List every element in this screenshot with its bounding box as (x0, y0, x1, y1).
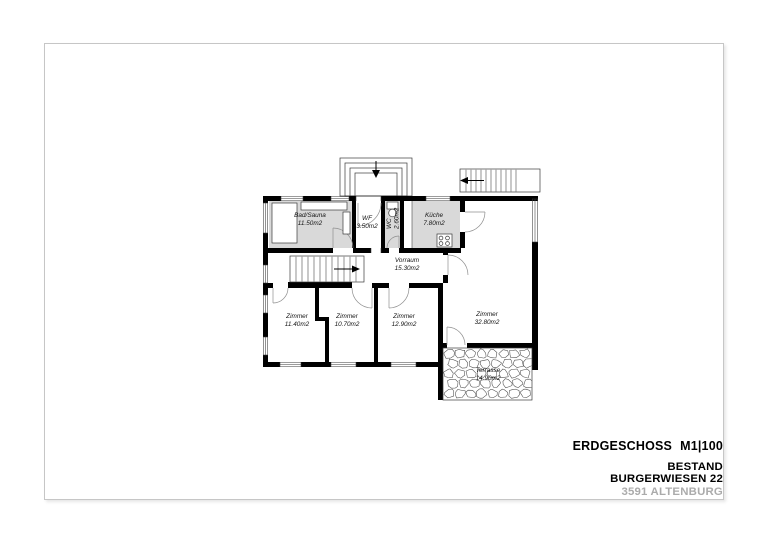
room-area-wc: 2.60m2 (394, 207, 401, 230)
room-label-wc: WC (386, 218, 393, 229)
room-label-vorraum: Vorraum (395, 257, 420, 264)
room-label-wf: WF (362, 215, 373, 222)
title-line-floor: ERDGESCHOSSM1|100 (573, 439, 723, 453)
terrace-door (447, 327, 465, 345)
room-label-zimmer1: Zimmer (285, 313, 309, 320)
zimmer1-door (273, 288, 288, 303)
kueche-door (465, 212, 485, 232)
bathtub (301, 202, 347, 210)
entrance-porch-steps (340, 158, 412, 196)
exterior-staircase (460, 169, 540, 192)
room-area-kueche: 7.80m2 (423, 220, 445, 227)
exterior-stair-direction-arrow-icon (460, 177, 484, 184)
zimmer2-door (352, 288, 372, 308)
title-block: ERDGESCHOSSM1|100 BESTAND BURGERWIESEN 2… (573, 439, 723, 498)
room-area-bad-sauna: 11.50m2 (298, 220, 323, 227)
sauna-bench (272, 203, 297, 243)
room-area-vorraum: 15.30m2 (395, 265, 420, 272)
room-label-zimmer2: Zimmer (335, 313, 359, 320)
room-area-zimmer3: 12.90m2 (392, 321, 417, 328)
entrance-direction-arrow-icon (372, 161, 380, 178)
floor-label: ERDGESCHOSS (573, 439, 672, 453)
page: { "title_block": { "floor_label": "ERDGE… (0, 0, 768, 543)
city-label: 3591 ALTENBURG (573, 486, 723, 498)
scale-label: M1|100 (680, 439, 723, 453)
room-area-terrasse: 14.90m2 (476, 375, 501, 382)
room-area-zimmer1: 11.40m2 (285, 321, 310, 328)
wf-passage (371, 248, 381, 253)
terrace (443, 348, 534, 400)
room-area-zimmer4: 32.80m2 (475, 319, 500, 326)
shower (343, 212, 350, 234)
room-area-wf: 3.50m2 (356, 223, 378, 230)
interior-staircase (290, 256, 364, 282)
room-label-bad-sauna: Bad/Sauna (294, 212, 326, 219)
room-area-zimmer2: 10.70m2 (335, 321, 360, 328)
room-label-zimmer4: Zimmer (475, 311, 499, 318)
room-label-kueche: Küche (425, 212, 444, 219)
status-label: BESTAND (573, 461, 723, 473)
zimmer3-door (389, 288, 409, 308)
room-label-terrasse: Terrasse (476, 367, 501, 374)
vorraum-zimmer-door (448, 255, 468, 275)
stove (437, 234, 452, 247)
room-label-zimmer3: Zimmer (392, 313, 416, 320)
street-label: BURGERWIESEN 22 (573, 473, 723, 485)
